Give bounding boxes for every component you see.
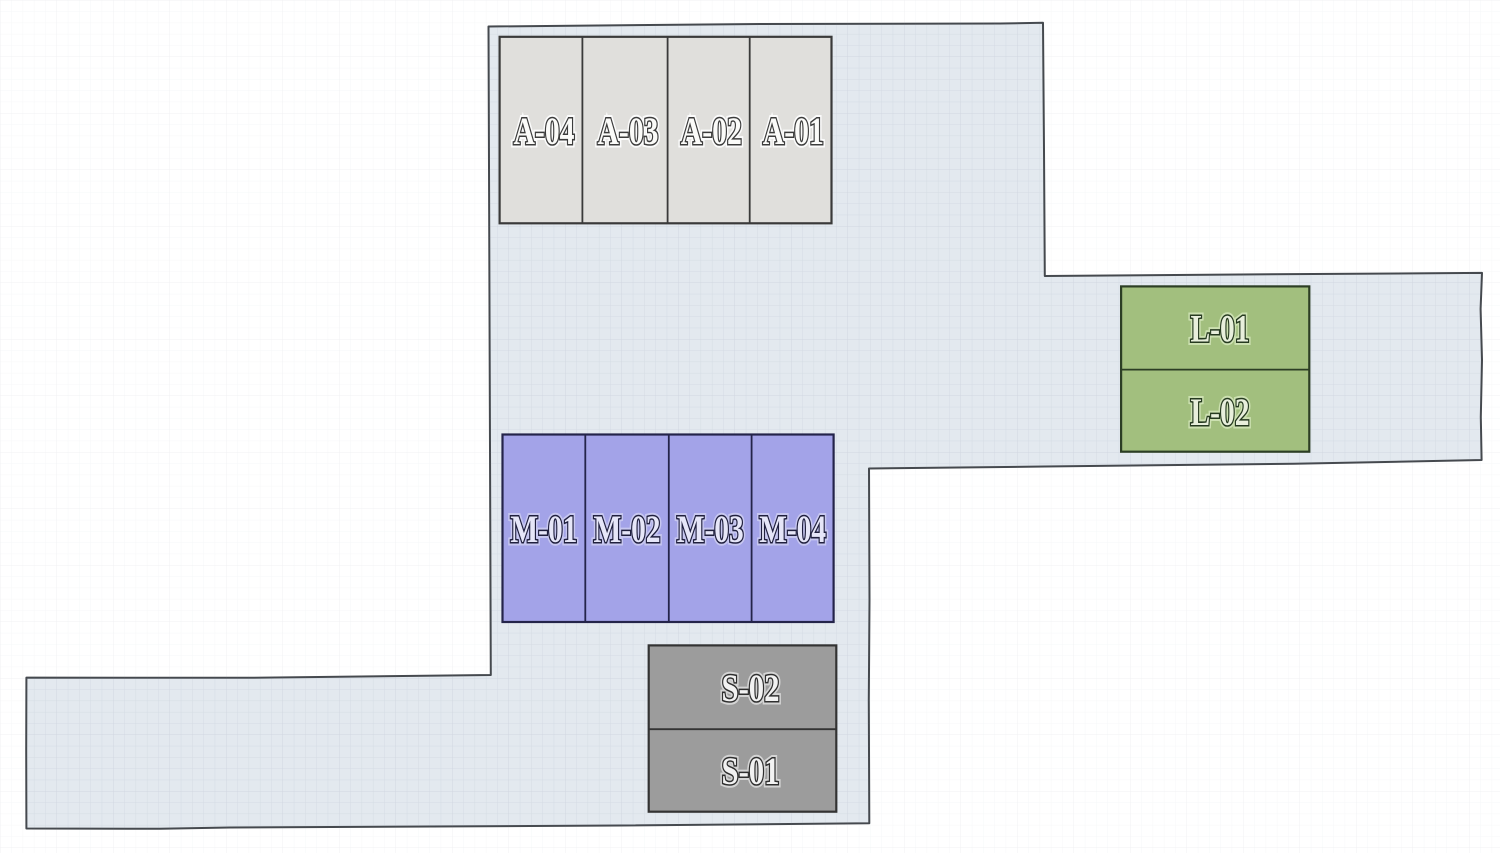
svg-text:M-04: M-04 (759, 507, 826, 551)
svg-text:L-01: L-01 (1191, 307, 1250, 351)
svg-text:M-02: M-02 (594, 507, 661, 551)
svg-text:M-03: M-03 (677, 507, 744, 551)
svg-text:S-01: S-01 (722, 749, 780, 793)
svg-text:L-02: L-02 (1191, 390, 1250, 434)
svg-text:A-02: A-02 (681, 109, 742, 153)
svg-text:M-01: M-01 (510, 507, 577, 551)
svg-text:A-03: A-03 (598, 109, 659, 153)
svg-text:A-04: A-04 (514, 109, 575, 153)
svg-text:S-02: S-02 (722, 666, 780, 710)
svg-text:A-01: A-01 (763, 109, 824, 153)
